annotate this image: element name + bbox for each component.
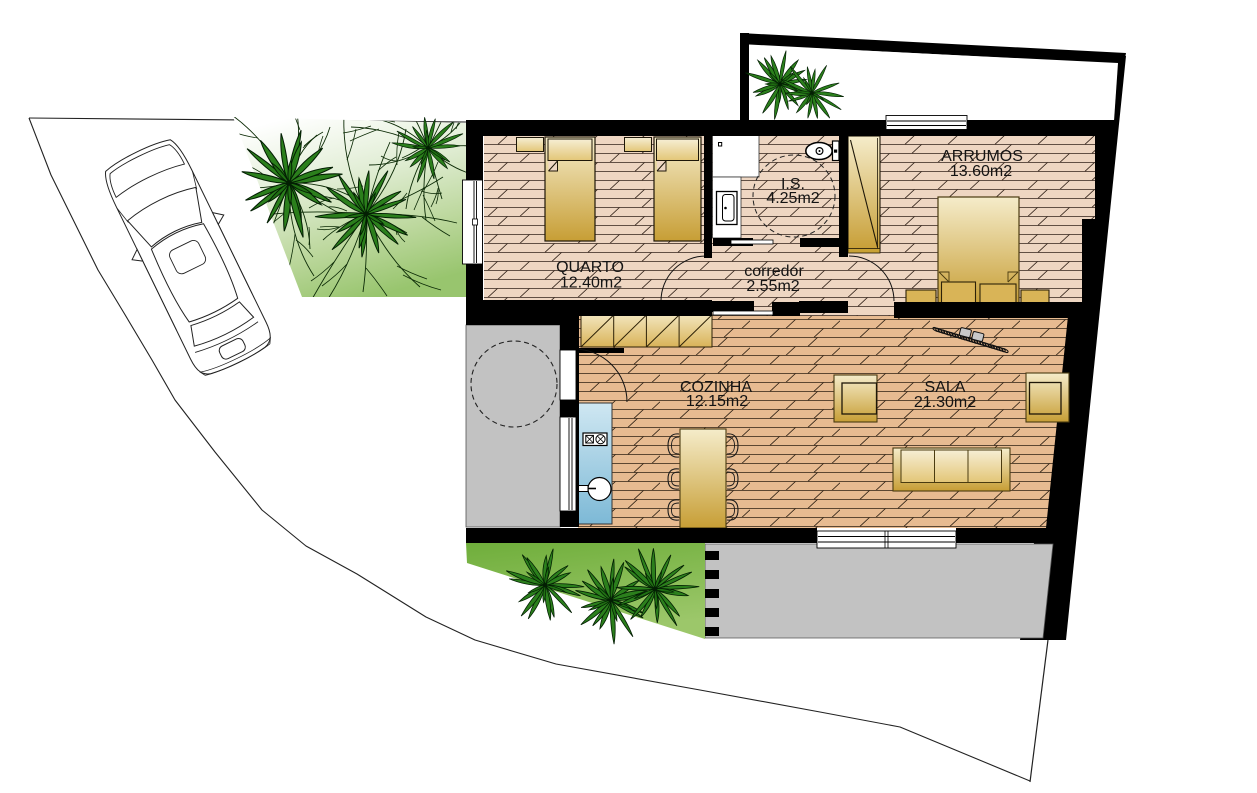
svg-text:2.55m2: 2.55m2 — [746, 278, 799, 295]
svg-text:12.40m2: 12.40m2 — [560, 275, 622, 292]
svg-text:21.30m2: 21.30m2 — [914, 394, 976, 411]
svg-text:12.15m2: 12.15m2 — [686, 393, 748, 410]
svg-text:4.25m2: 4.25m2 — [766, 190, 819, 207]
svg-text:13.60m2: 13.60m2 — [950, 163, 1012, 180]
svg-text:QUARTO: QUARTO — [556, 259, 624, 276]
